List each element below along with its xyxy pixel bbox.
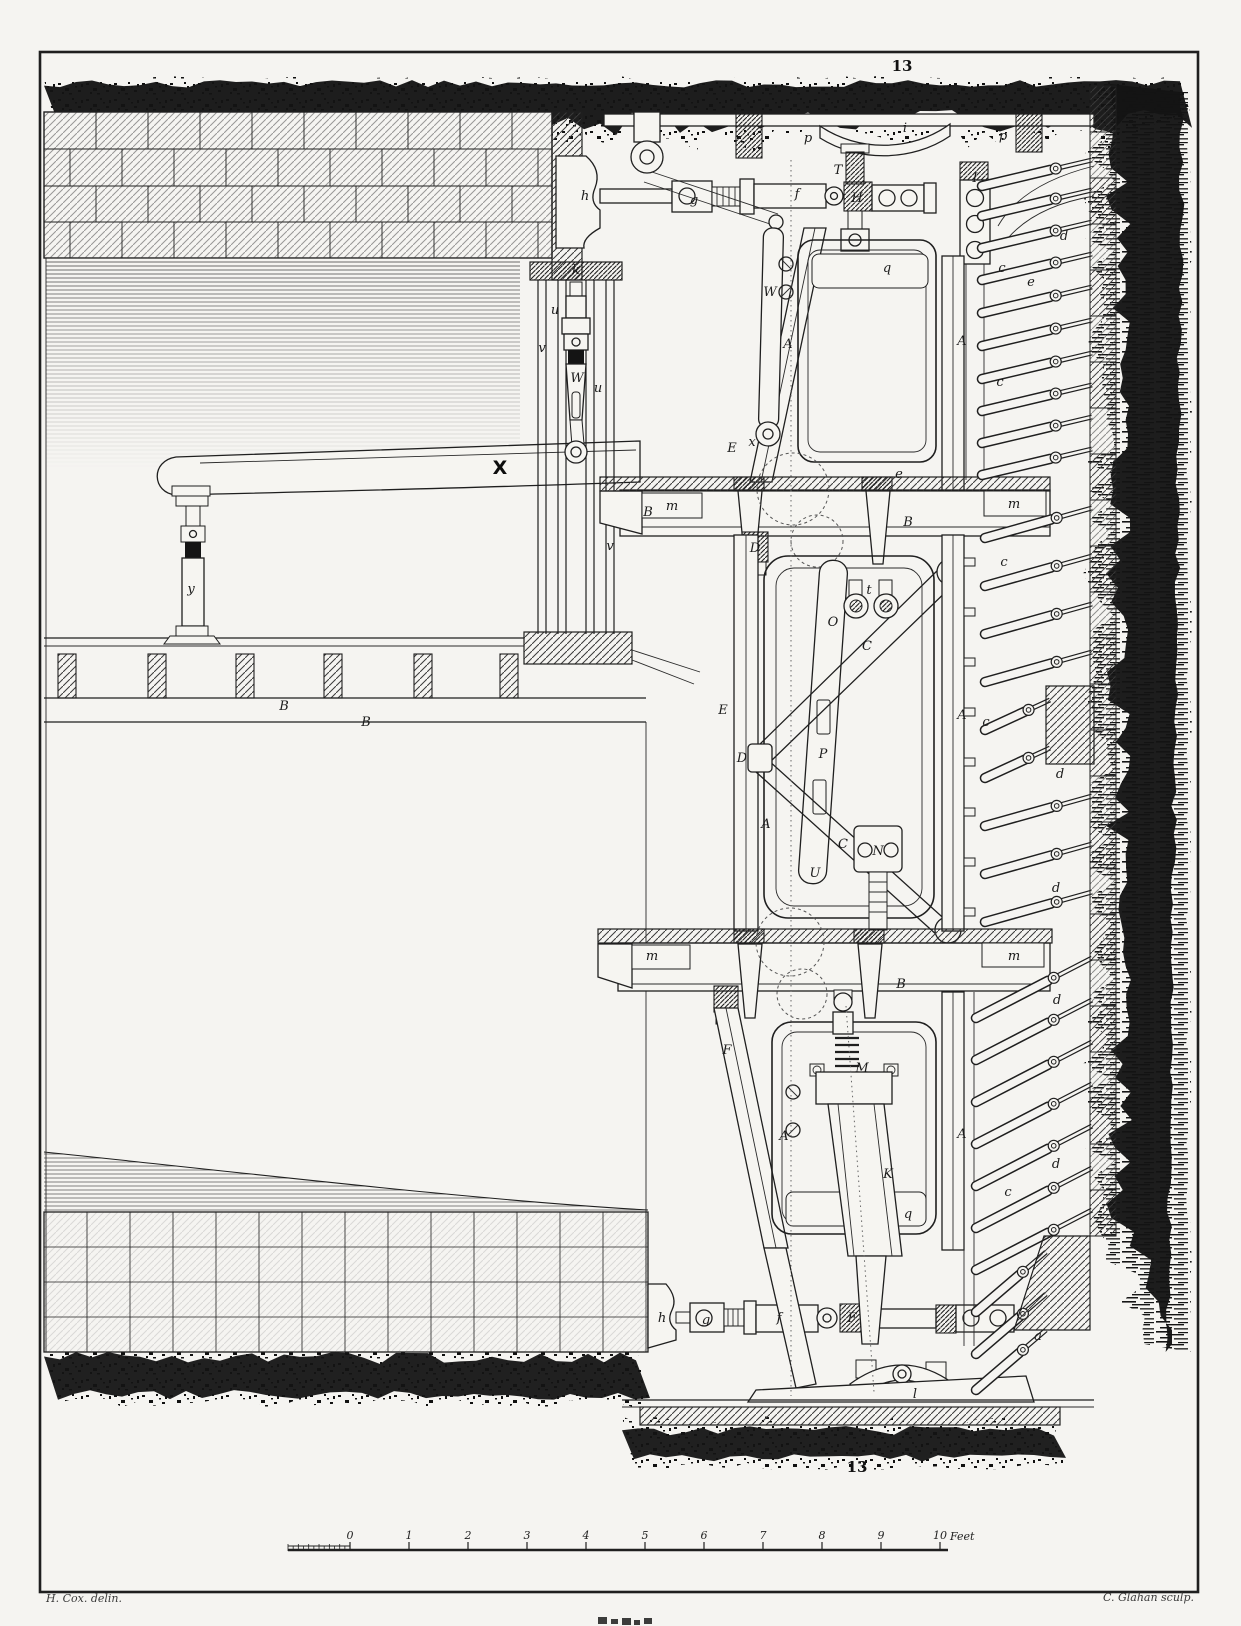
part-label: p (999, 129, 1008, 144)
part-label: P (818, 747, 828, 762)
part-label: B (360, 715, 371, 730)
scale-tick-label: 7 (760, 1529, 767, 1542)
part-label: m (1008, 949, 1020, 964)
engraving-plate: 012345678910 piphgfHTIekuvWuWqAAExBmBmve… (0, 0, 1241, 1626)
part-label: T (834, 163, 844, 178)
part-label: N (871, 844, 884, 859)
part-label: K (882, 1167, 894, 1182)
screw-thread (185, 542, 201, 558)
deck-joist (236, 654, 254, 698)
part-label: k (572, 263, 580, 278)
part-label: c (996, 375, 1004, 390)
scale-tick-label: 4 (582, 1529, 590, 1542)
foundation-course (640, 1407, 1060, 1425)
part-label: c (1004, 1185, 1012, 1200)
part-label: g (702, 1313, 710, 1328)
part-label: h (581, 189, 589, 204)
clipped-caption-fragment (634, 1620, 640, 1625)
part-label: C (838, 837, 848, 852)
part-label: e (1027, 275, 1035, 290)
part-label: d (1060, 229, 1068, 244)
part-label: m (646, 949, 658, 964)
part-label: d (1052, 881, 1060, 896)
deck-joist (324, 654, 342, 698)
part-label: x (748, 435, 756, 450)
part-label: D (749, 541, 761, 556)
part-label: A (778, 1129, 788, 1144)
part-label: m (1008, 497, 1020, 512)
part-label: B (278, 699, 289, 714)
part-label: U (810, 866, 822, 881)
deck-joist (414, 654, 432, 698)
screw-thread (568, 350, 584, 364)
clipped-caption-fragment (644, 1618, 652, 1624)
part-label: F (721, 1043, 732, 1058)
deck-joist (58, 654, 76, 698)
part-label: c (1000, 555, 1008, 570)
signature-engraver: C. Glahan sculp. (1103, 1591, 1194, 1604)
scale-tick-label: 3 (524, 1529, 531, 1542)
clipped-caption-fragment (598, 1617, 607, 1624)
part-label: u (551, 303, 559, 318)
part-label: D (736, 751, 748, 766)
part-label: p (804, 131, 813, 146)
part-label: A (956, 1127, 966, 1142)
part-label: m (666, 499, 678, 514)
part-label: c (982, 715, 990, 730)
part-label: I (971, 171, 978, 186)
column-base-block (524, 632, 632, 664)
part-label: v (538, 341, 546, 356)
part-label: W (570, 371, 585, 386)
part-label: A (782, 337, 792, 352)
signature-delineator: H. Cox. delin. (45, 1592, 122, 1605)
adjusting-screw (846, 152, 864, 184)
scale-tick-label: 2 (464, 1529, 472, 1542)
part-label: F (846, 1311, 857, 1326)
scale-tick-label: 9 (878, 1529, 885, 1542)
part-label: A (956, 334, 966, 349)
top-anchor-post (1016, 112, 1042, 152)
deck-joist (500, 654, 518, 698)
part-label: y (186, 582, 195, 597)
part-label: v (606, 539, 614, 554)
part-label: t (866, 583, 872, 598)
part-label: A (760, 817, 770, 832)
part-label: B (902, 515, 913, 530)
part-label: A (956, 708, 966, 723)
part-label: h (658, 1311, 666, 1326)
scale-tick-label: 10 (933, 1529, 947, 1542)
figure-number-top: 13 (892, 57, 913, 75)
part-label: g (690, 193, 698, 208)
part-label: l (913, 1387, 917, 1402)
part-label: C (862, 639, 872, 654)
top-anchor-post (736, 112, 762, 158)
scale-unit-label: Feet (949, 1530, 975, 1543)
scale-tick-label: 6 (701, 1529, 708, 1542)
part-label: X (493, 457, 508, 479)
part-label: q (904, 1207, 912, 1222)
key-block (936, 1305, 956, 1333)
part-label: O (828, 615, 839, 630)
scale-tick-label: 8 (819, 1529, 826, 1542)
deck-joist (148, 654, 166, 698)
clipped-caption-fragment (611, 1619, 618, 1624)
part-label: W (763, 285, 778, 300)
figure-number-bottom: 13 (847, 1458, 868, 1476)
part-label: d (1052, 1157, 1060, 1172)
engraving-plate-page: 012345678910 piphgfHTIekuvWuWqAAExBmBmve… (0, 0, 1241, 1626)
part-label: d (1056, 767, 1064, 782)
part-label: i (903, 121, 907, 136)
part-label: B (895, 977, 906, 992)
part-label: E (717, 703, 728, 718)
part-label: M (854, 1061, 869, 1076)
clipped-caption-fragment (622, 1618, 631, 1625)
scale-tick-label: 5 (642, 1529, 649, 1542)
scale-tick-label: 0 (347, 1529, 354, 1542)
wall-step-block (1046, 686, 1094, 764)
part-label: q (883, 261, 891, 276)
walkway-plate (598, 929, 1052, 943)
scale-tick-label: 1 (406, 1529, 413, 1542)
part-label: B (642, 505, 653, 520)
part-label: e (895, 467, 903, 482)
part-label: u (594, 381, 602, 396)
part-label: a (1034, 1329, 1042, 1344)
part-label: E (726, 441, 737, 456)
part-label: c (998, 261, 1006, 276)
part-label: H (850, 191, 863, 206)
part-label: d (1053, 993, 1061, 1008)
